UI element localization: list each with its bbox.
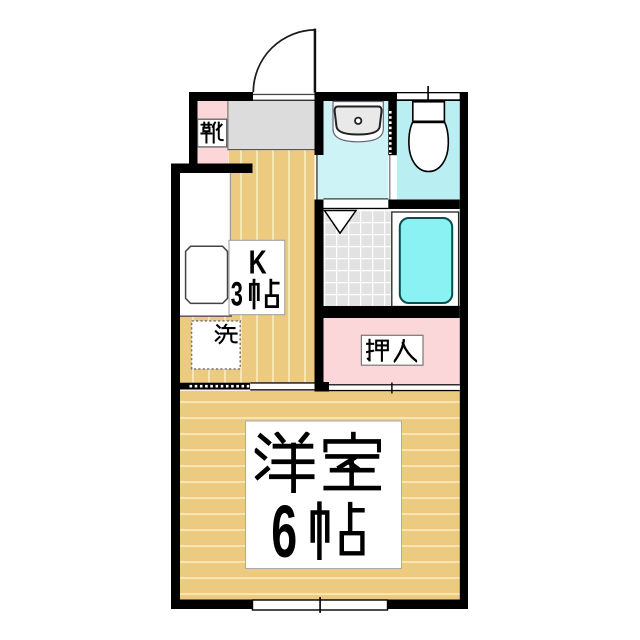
svg-text:3: 3 [231,275,243,313]
svg-text:6: 6 [271,491,297,574]
svg-text:K: K [249,244,267,281]
